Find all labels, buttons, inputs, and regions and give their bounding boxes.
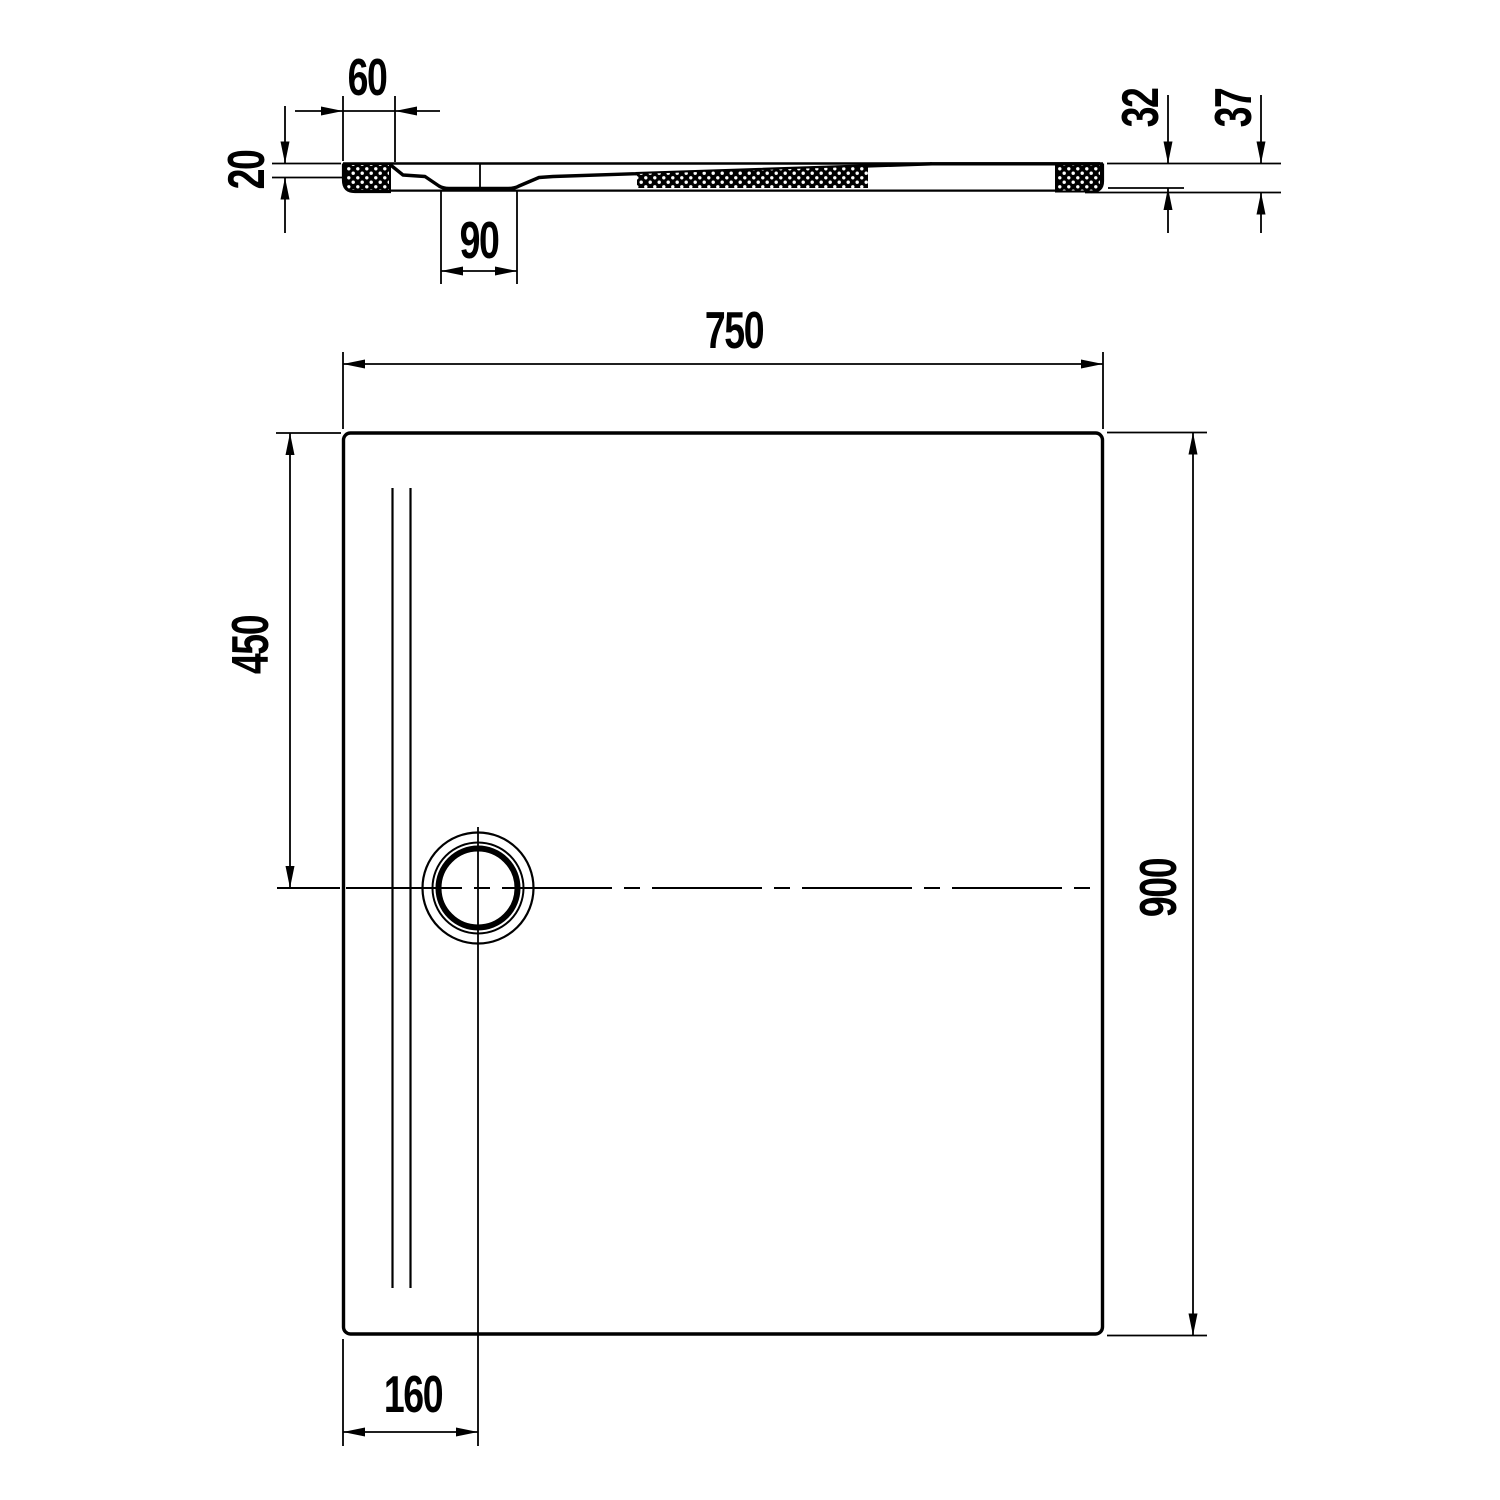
- section-left-rim-block: [345, 164, 390, 191]
- dim-label-total-height: 37: [1204, 89, 1264, 128]
- dim-20: [272, 106, 343, 233]
- dim-450: [276, 433, 341, 888]
- plan-view: [276, 352, 1207, 1446]
- dim-label-rim-width: 60: [348, 48, 387, 108]
- technical-drawing: 60 20 90 32 37 750 450 900 160: [0, 0, 1500, 1500]
- dim-label-outlet-recess-width: 90: [460, 211, 499, 271]
- section-right-rim-block: [1056, 165, 1101, 192]
- dim-label-depth: 900: [1129, 859, 1189, 917]
- dim-label-edge-height: 32: [1111, 89, 1171, 128]
- dim-750: [343, 352, 1103, 429]
- dim-label-width: 750: [705, 301, 763, 361]
- dim-label-drain-from-top: 450: [221, 616, 281, 674]
- drawing-canvas: [0, 0, 1500, 1500]
- plan-tray-outline: [344, 433, 1103, 1334]
- dim-label-rim-thickness: 20: [217, 151, 277, 190]
- dim-label-drain-from-left: 160: [384, 1365, 442, 1425]
- plan-centerlines: [277, 827, 1101, 1446]
